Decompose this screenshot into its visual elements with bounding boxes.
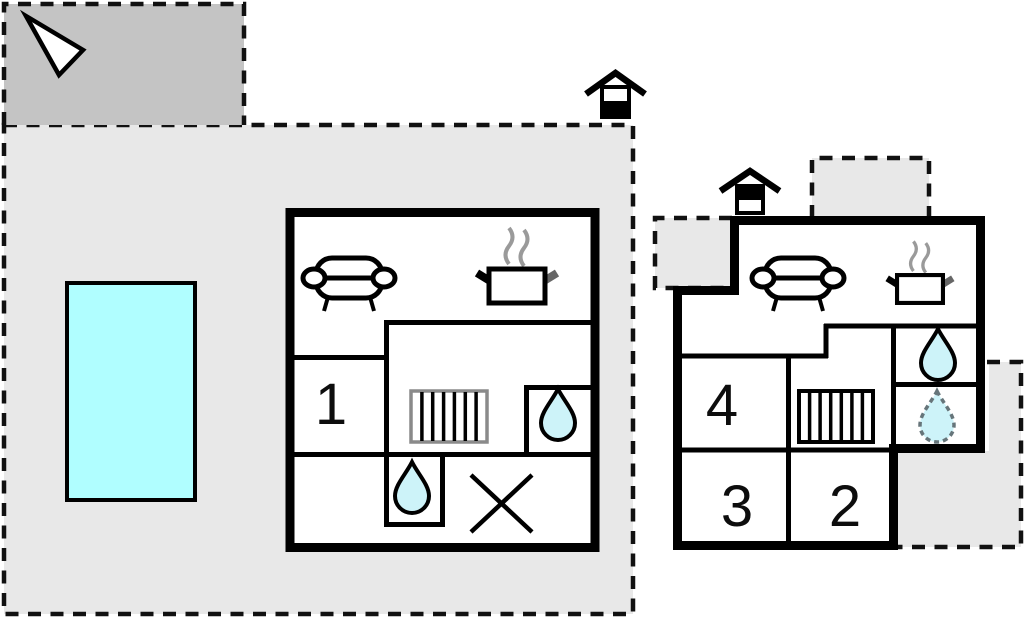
ground-floor-house-icon — [586, 73, 645, 117]
north-area — [4, 4, 244, 125]
floor-plan-canvas: 1 — [0, 0, 1024, 620]
swimming-pool — [67, 283, 195, 500]
room-4-label: 4 — [706, 373, 738, 438]
room-1-label: 1 — [315, 372, 347, 437]
terrace-top — [812, 158, 929, 218]
floor-plan-drawing: 1 — [0, 0, 1024, 620]
room-2-label: 2 — [829, 474, 861, 539]
room-3-label: 3 — [721, 474, 753, 539]
terrace-left — [655, 218, 732, 288]
stairs-icon — [411, 391, 487, 442]
upper-floor-house-icon — [721, 171, 780, 213]
ground-floor-plan: 1 — [286, 213, 595, 548]
stairs-icon — [799, 391, 873, 442]
